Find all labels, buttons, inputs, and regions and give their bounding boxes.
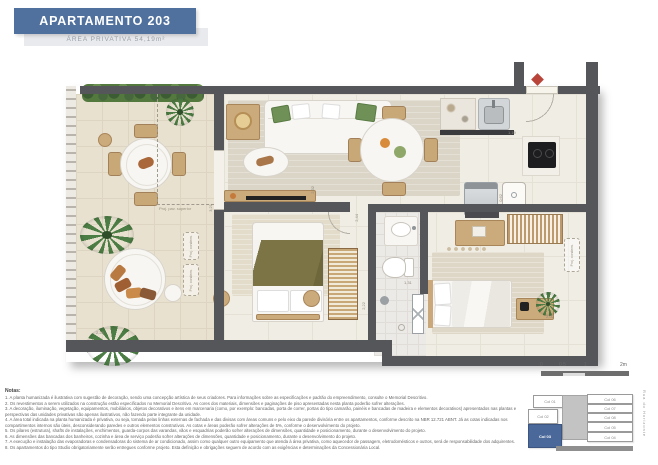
throw-pillow: [291, 103, 310, 120]
dimension-label: 2,22: [361, 302, 366, 310]
street-name: Rua do Horizonte: [642, 390, 647, 456]
terrace-side-table: [164, 284, 182, 302]
kitchen-faucet: [492, 100, 495, 108]
table-lamp: [234, 112, 252, 130]
key-plan: Col 01 Col 02 Col 03 Col 06 Col 07 Col 0…: [526, 390, 658, 462]
keyplan-unit: Col 07: [587, 404, 633, 413]
bed2-blanket: [452, 281, 510, 327]
keyplan-core: [562, 395, 588, 440]
shower-door: [412, 294, 424, 334]
dimension-label: 1,19: [508, 130, 516, 135]
note-line: 4. A área total indicada na planta human…: [5, 417, 535, 428]
dimension-label: 2,02: [546, 314, 554, 319]
scale-bar: 0 0.5 1 2m: [540, 362, 632, 378]
scale-segment: [563, 371, 585, 376]
tv: [246, 196, 306, 200]
upper-floor-projection-line: [157, 94, 158, 202]
bush-plant: [166, 98, 194, 126]
wardrobe-louver: [328, 248, 358, 320]
vanity-sink: [391, 222, 411, 237]
toilet: [382, 257, 406, 278]
burner: [545, 149, 554, 158]
keyplan-unit: Col 02: [528, 409, 558, 424]
throw-pillow: [321, 103, 340, 120]
dimension-label: 1,31: [404, 280, 412, 285]
note-line: 3. A decoração, iluminação, vegetação, e…: [5, 406, 535, 417]
private-area-label: ÁREA PRIVATIVA 54,19m²: [24, 36, 208, 43]
table-decor-black: [520, 302, 529, 311]
entrance-marker: [531, 73, 544, 86]
throw-pillow: [271, 105, 292, 124]
kitchen-sink: [484, 106, 504, 124]
dimension-label: 3,21: [208, 204, 213, 212]
outdoor-chair: [134, 192, 158, 206]
condenser-projection: Proj. condens.: [564, 238, 580, 272]
dining-decor: [394, 146, 406, 158]
entrance-door: [526, 86, 558, 94]
note-line: 8. Os apartamentos do tipo Studio obriga…: [5, 445, 535, 451]
keyplan-unit: Col 06: [587, 394, 633, 404]
wall-tv: [465, 212, 499, 218]
keyplan-unit: Col 05: [587, 422, 633, 432]
bed-bench: [256, 314, 320, 320]
wall: [586, 62, 598, 366]
bed2-pillow: [433, 282, 451, 305]
kitchen-cabinet-front: [440, 130, 514, 135]
potted-plant: [536, 292, 560, 316]
dining-chair: [382, 182, 406, 196]
wall: [214, 86, 224, 340]
keyplan-facade-strip: [556, 446, 633, 451]
bed2-pillow: [433, 304, 451, 326]
wall: [420, 212, 428, 294]
scale-segment: [585, 371, 629, 376]
throw-pillow: [355, 103, 377, 123]
wall: [514, 62, 524, 94]
door-swing-arc: [526, 94, 556, 124]
terrace-stool: [98, 133, 112, 147]
bed-pillow: [257, 290, 289, 312]
condenser-projection: Proj. condens.: [183, 232, 199, 260]
dimension-label: 2,44: [354, 214, 359, 222]
wall: [368, 212, 376, 340]
sliding-glass-door: [214, 150, 224, 210]
door-swing-arc: [326, 212, 350, 236]
keyplan-unit-highlighted: Col 03: [528, 424, 562, 448]
dimension-label: 2,32: [310, 186, 315, 194]
floor-plan: Proj. pav. superior Proj. condens. Proj.…: [60, 54, 605, 370]
dining-table: [360, 118, 424, 182]
title-banner: APARTAMENTO 203: [14, 8, 196, 34]
dimension-label: 0,62: [498, 194, 503, 202]
vanity-faucet: [412, 226, 416, 230]
outdoor-chair: [134, 124, 158, 138]
wall: [66, 340, 392, 352]
condenser-projection: Proj. condens.: [183, 264, 199, 296]
notes-block: Notas: 1. A planta humanizada é ilustrat…: [5, 388, 535, 450]
keyplan-unit: Col 08: [587, 413, 633, 422]
keyplan-unit: Col 04: [587, 432, 633, 442]
wall: [368, 204, 586, 212]
floor-drain: [398, 324, 405, 331]
wall: [224, 202, 350, 212]
dimension-label: 2,28: [96, 330, 104, 335]
burner: [533, 149, 542, 158]
tub-drain: [511, 192, 517, 198]
scale-segment: [541, 371, 563, 376]
upper-floor-projection-line: [157, 204, 214, 205]
dining-decor: [380, 138, 390, 148]
scale-tick: 0.5: [559, 362, 566, 368]
projection-label: Proj. pav. superior: [159, 206, 191, 211]
scale-tick: 0: [540, 362, 543, 368]
console-decor: [230, 193, 236, 199]
garland-decor: [446, 247, 486, 251]
notes-heading: Notas:: [5, 388, 535, 394]
bed-blanket: [253, 240, 323, 286]
floorplan-page: ÁREA PRIVATIVA 54,19m² APARTAMENTO 203: [0, 0, 658, 465]
console-decor: [472, 226, 486, 237]
apartment-title: APARTAMENTO 203: [39, 14, 170, 28]
kitchen-counter-marble: [440, 98, 476, 130]
scale-tick: 1: [584, 362, 587, 368]
headboard: [428, 280, 433, 328]
shower-head: [380, 296, 389, 305]
nightstand-pouf: [303, 290, 320, 307]
outdoor-chair: [172, 152, 186, 176]
note-line: 7. A execução e instalação das evaporado…: [5, 439, 535, 445]
terrace-railing: [66, 86, 76, 352]
scale-tick: 2m: [620, 362, 627, 368]
louver-closet: [507, 214, 563, 244]
dining-chair: [424, 138, 438, 162]
